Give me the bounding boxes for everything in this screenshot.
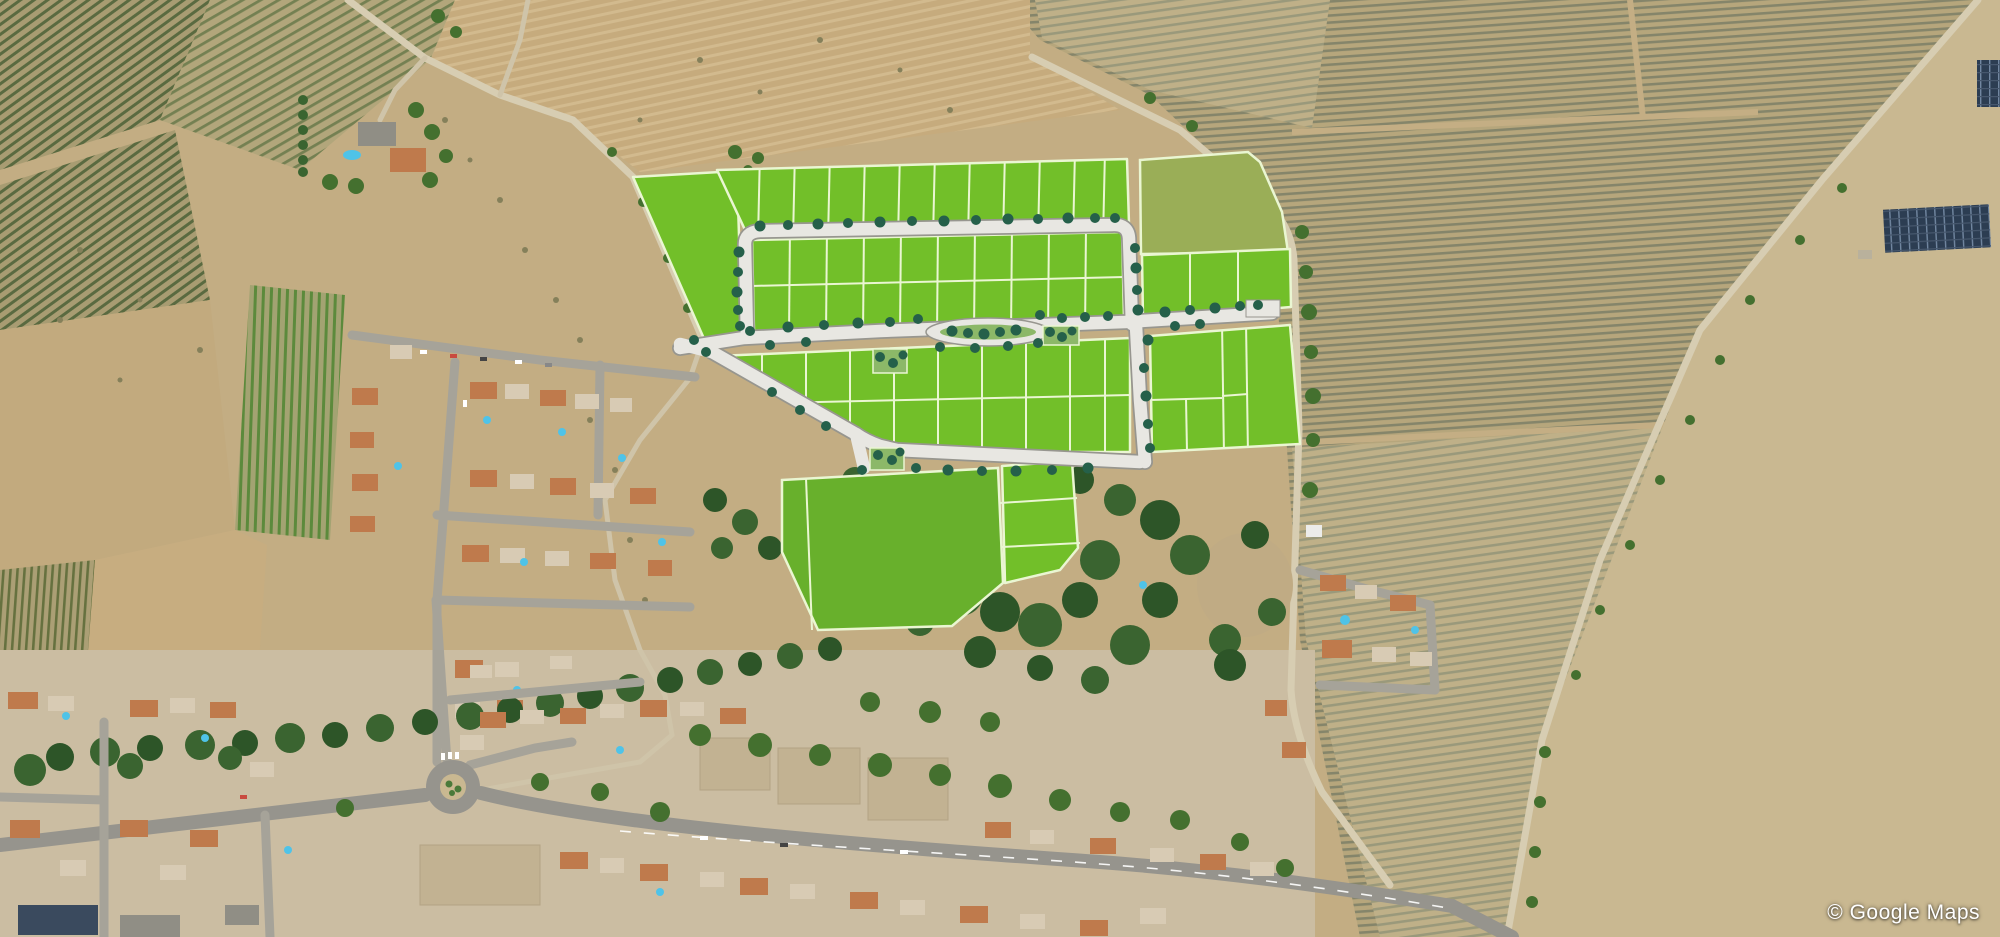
plot-section-big-south — [782, 468, 1003, 630]
plot-section-east-lower — [1150, 325, 1300, 452]
map-render — [0, 0, 2000, 937]
map-attribution: © Google Maps — [1827, 901, 1980, 925]
field-west-brown — [0, 300, 235, 570]
satellite-layer — [0, 0, 2000, 937]
satellite-map-canvas[interactable]: © Google Maps — [0, 0, 2000, 937]
vineyard-field-west-green — [235, 285, 345, 540]
